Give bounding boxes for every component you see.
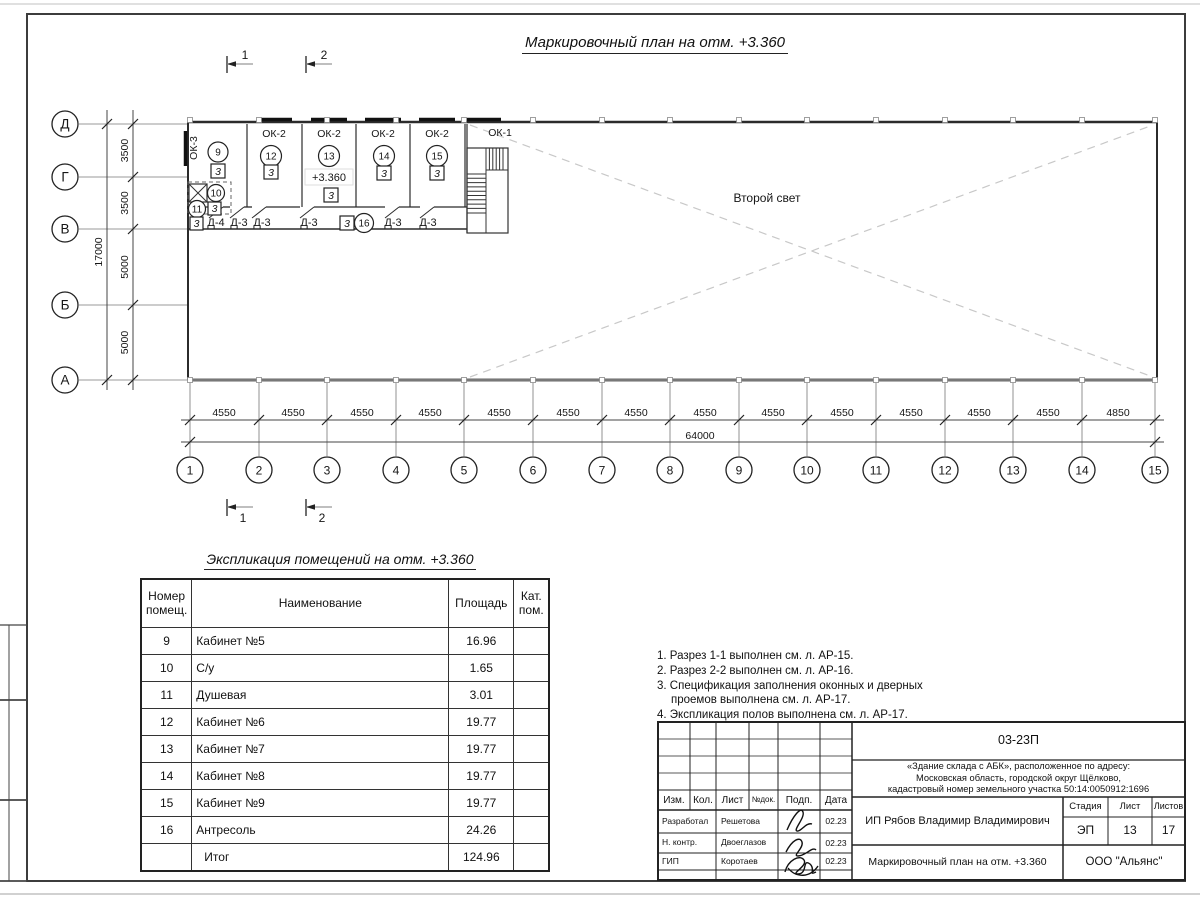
cell-cat <box>514 844 550 872</box>
signature-reshetova <box>787 810 812 831</box>
room-number: 13 <box>323 152 335 163</box>
axis-row-label: Г <box>61 170 69 185</box>
cell-num: 10 <box>141 655 192 682</box>
col-label: 11 <box>870 464 883 478</box>
table-row: 14 Кабинет №8 19.77 <box>141 763 549 790</box>
col-dim: 4850 <box>1106 407 1130 419</box>
room-number: 9 <box>215 148 221 159</box>
titleblock-project-description: «Здание склада с АБК», расположенное по … <box>852 761 1185 796</box>
floor-cat-mark: 3 <box>212 203 218 215</box>
stairs <box>467 148 508 233</box>
table-row: 16 Антресоль 24.26 <box>141 817 549 844</box>
titleblock-col-izm: Изм. <box>658 790 690 810</box>
col-dim: 4550 <box>761 407 785 419</box>
floor-cat-mark: 3 <box>344 218 350 230</box>
section-marks <box>227 56 332 516</box>
col-label: 14 <box>1075 464 1089 478</box>
table-header-row: Номер помещ. Наименование Площадь Кат. п… <box>141 579 549 628</box>
cell-cat <box>514 817 550 844</box>
room-number: 11 <box>192 205 203 216</box>
table-row: 10 С/у 1.65 <box>141 655 549 682</box>
titleblock-name: Двоеглазов <box>718 833 780 853</box>
window-label-ok2: ОК-2 <box>371 128 395 140</box>
col-header-name: Наименование <box>192 579 449 628</box>
window-label-ok2: ОК-2 <box>262 128 286 140</box>
titleblock-stage-label: Стадия <box>1063 797 1108 817</box>
col-label: 4 <box>393 464 400 478</box>
signature-korotaev <box>785 858 818 876</box>
titleblock-sheets-value: 17 <box>1152 817 1185 845</box>
col-dim: 4550 <box>418 407 442 419</box>
titleblock-stage-value: ЭП <box>1063 817 1108 845</box>
cell-cat <box>514 709 550 736</box>
window-label-ok2: ОК-2 <box>425 128 449 140</box>
titleblock-date: 02.23 <box>820 837 852 850</box>
section-mark-label: 2 <box>319 511 326 525</box>
col-dim: 4550 <box>350 407 374 419</box>
titleblock-role: Разработал <box>659 810 718 833</box>
cell-name: Душевая <box>192 682 449 709</box>
cell-name: Антресоль <box>192 817 449 844</box>
cell-area: 1.65 <box>449 655 514 682</box>
axis-circles <box>52 111 78 393</box>
titleblock-sheet-value: 13 <box>1108 817 1152 845</box>
cell-num: 16 <box>141 817 192 844</box>
room-number: 15 <box>431 152 443 163</box>
room-number: 10 <box>210 189 222 200</box>
floor-cat-mark: 3 <box>434 168 440 180</box>
note-line: 1. Разрез 1-1 выполнен см. л. АР-15. <box>657 649 1017 664</box>
cell-cat <box>514 763 550 790</box>
note-line: 3. Спецификация заполнения оконных и две… <box>657 679 1017 694</box>
note-line: 2. Разрез 2-2 выполнен см. л. АР-16. <box>657 664 1017 679</box>
col-label: 6 <box>530 464 537 478</box>
cell-name: Кабинет №8 <box>192 763 449 790</box>
titleblock-sheet-label: Лист <box>1108 797 1152 817</box>
cell-area: 16.96 <box>449 628 514 655</box>
table-row: 9 Кабинет №5 16.96 <box>141 628 549 655</box>
cell-name: Кабинет №5 <box>192 628 449 655</box>
titleblock-col-ndok: №док. <box>749 790 778 810</box>
signatures <box>785 810 818 875</box>
cell-num <box>141 844 192 872</box>
axis-row-label: Д <box>60 117 69 132</box>
axis-row-label: Б <box>61 298 70 313</box>
second-light-cross <box>470 125 1153 377</box>
section-mark-label: 2 <box>321 48 328 62</box>
explication-table: Номер помещ. Наименование Площадь Кат. п… <box>140 578 550 872</box>
col-label: 2 <box>256 464 263 478</box>
window-label-ok1: ОК-1 <box>488 127 512 139</box>
cell-num: 13 <box>141 736 192 763</box>
door-label: Д-3 <box>419 217 436 229</box>
floor-cat-mark: 3 <box>381 168 387 180</box>
cell-cat <box>514 682 550 709</box>
dimension-ticks <box>102 119 1160 447</box>
cell-name: Кабинет №7 <box>192 736 449 763</box>
col-dim: 4550 <box>487 407 511 419</box>
titleblock-doc-number: 03-23П <box>852 722 1185 760</box>
col-dim: 4550 <box>830 407 854 419</box>
titleblock-date: 02.23 <box>820 855 852 868</box>
col-dim: 4550 <box>693 407 717 419</box>
cell-cat <box>514 628 550 655</box>
cell-num: 12 <box>141 709 192 736</box>
col-header-area: Площадь <box>449 579 514 628</box>
cell-name: Кабинет №9 <box>192 790 449 817</box>
titleblock-name: Коротаев <box>718 853 780 870</box>
axis-row-label: В <box>60 222 69 237</box>
cell-num: 15 <box>141 790 192 817</box>
titleblock-drawing-title: Маркировочный план на отм. +3.360 <box>852 845 1063 880</box>
section-mark-label: 1 <box>240 511 247 525</box>
cell-num: 9 <box>141 628 192 655</box>
note-line: проемов выполнена см. л. АР-17. <box>657 693 1017 708</box>
col-label: 9 <box>736 464 743 478</box>
col-dim: 4550 <box>967 407 991 419</box>
room-number: 16 <box>358 219 370 230</box>
table-total-row: Итог 124.96 <box>141 844 549 872</box>
col-label: 15 <box>1148 464 1162 478</box>
col-dim: 4550 <box>624 407 648 419</box>
col-dim: 4550 <box>899 407 923 419</box>
col-dim: 4550 <box>556 407 580 419</box>
table-row: 15 Кабинет №9 19.77 <box>141 790 549 817</box>
axis-lines <box>79 124 1155 456</box>
row-dim: 5000 <box>119 255 131 279</box>
window-label-ok3: ОК-3 <box>188 136 200 160</box>
col-label: 3 <box>324 464 331 478</box>
col-label: 7 <box>599 464 606 478</box>
cell-name: С/у <box>192 655 449 682</box>
project-line: кадастровый номер земельного участка 50:… <box>852 784 1185 796</box>
col-label: 1 <box>187 464 194 478</box>
cell-area: 19.77 <box>449 709 514 736</box>
col-label: 5 <box>461 464 468 478</box>
page-title: Маркировочный план на отм. +3.360 <box>450 34 860 51</box>
cell-num: 14 <box>141 763 192 790</box>
cell-cat <box>514 736 550 763</box>
cell-cat <box>514 655 550 682</box>
titleblock-col-list: Лист <box>716 790 749 810</box>
room-marks <box>189 142 448 233</box>
floor-cat-mark: 3 <box>328 190 334 202</box>
door-label: Д-4 <box>207 217 224 229</box>
door-label: Д-3 <box>384 217 401 229</box>
door-label: Д-3 <box>253 217 270 229</box>
col-label: 12 <box>938 464 952 478</box>
table-row: 11 Душевая 3.01 <box>141 682 549 709</box>
row-dim: 5000 <box>119 331 131 355</box>
col-dim: 4550 <box>212 407 236 419</box>
cell-name: Кабинет №6 <box>192 709 449 736</box>
room-number: 14 <box>378 152 390 163</box>
project-line: «Здание склада с АБК», расположенное по … <box>852 761 1185 773</box>
titleblock-col-podp: Подп. <box>778 790 820 810</box>
col-header-room-number: Номер помещ. <box>141 579 192 628</box>
room-number: 12 <box>265 152 277 163</box>
project-line: Московская область, городской округ Щёлк… <box>852 773 1185 785</box>
floor-cat-mark: 3 <box>268 167 274 179</box>
titleblock-role: ГИП <box>659 853 718 870</box>
window-bars <box>186 120 502 167</box>
note-line: 4. Экспликация полов выполнена см. л. АР… <box>657 708 1017 723</box>
section-mark-label: 1 <box>242 48 249 62</box>
cell-area: 19.77 <box>449 736 514 763</box>
table-row: 12 Кабинет №6 19.77 <box>141 709 549 736</box>
window-label-ok2: ОК-2 <box>317 128 341 140</box>
col-label: 10 <box>800 464 814 478</box>
cell-num: 11 <box>141 682 192 709</box>
col-label: 8 <box>667 464 674 478</box>
door-label: Д-3 <box>230 217 247 229</box>
cell-area: 3.01 <box>449 682 514 709</box>
cell-area: 19.77 <box>449 790 514 817</box>
col-dim: 4550 <box>281 407 305 419</box>
titleblock-sheets-label: Листов <box>1152 797 1185 817</box>
titleblock-client: ИП Рябов Владимир Владимирович <box>852 797 1063 845</box>
titleblock-col-kol: Кол. <box>690 790 716 810</box>
notes-block: 1. Разрез 1-1 выполнен см. л. АР-15. 2. … <box>657 649 1017 723</box>
floor-cat-mark: 3 <box>215 166 221 178</box>
cell-area: 19.77 <box>449 763 514 790</box>
door-label: Д-3 <box>300 217 317 229</box>
left-margin-boxes <box>0 625 27 881</box>
titleblock-col-data: Дата <box>820 790 852 810</box>
titleblock-date: 02.23 <box>820 815 852 828</box>
cell-total-value: 124.96 <box>449 844 514 872</box>
col-header-category: Кат. пом. <box>514 579 550 628</box>
titleblock-name: Решетова <box>718 810 780 833</box>
col-total-dim: 64000 <box>685 430 714 442</box>
row-total-dim: 17000 <box>93 237 105 266</box>
row-dim: 3500 <box>119 191 131 215</box>
cell-total-label: Итог <box>192 844 449 872</box>
cell-area: 24.26 <box>449 817 514 844</box>
col-dim: 4550 <box>1036 407 1060 419</box>
col-label: 13 <box>1006 464 1020 478</box>
row-dim: 3500 <box>119 139 131 163</box>
second-light-label: Второй свет <box>733 191 801 205</box>
floor-cat-mark: 3 <box>194 218 200 230</box>
elevation-mark: +3.360 <box>312 172 346 184</box>
explication-title: Экспликация помещений на отм. +3.360 <box>150 551 530 567</box>
table-row: 13 Кабинет №7 19.77 <box>141 736 549 763</box>
titleblock-role: Н. контр. <box>659 833 718 853</box>
titleblock-company: ООО "Альянс" <box>1063 845 1185 880</box>
axis-row-label: А <box>60 373 69 388</box>
drawing-sheet: { "sheet": {"line_color": "#1a1a1a", "ba… <box>0 0 1200 900</box>
cell-cat <box>514 790 550 817</box>
